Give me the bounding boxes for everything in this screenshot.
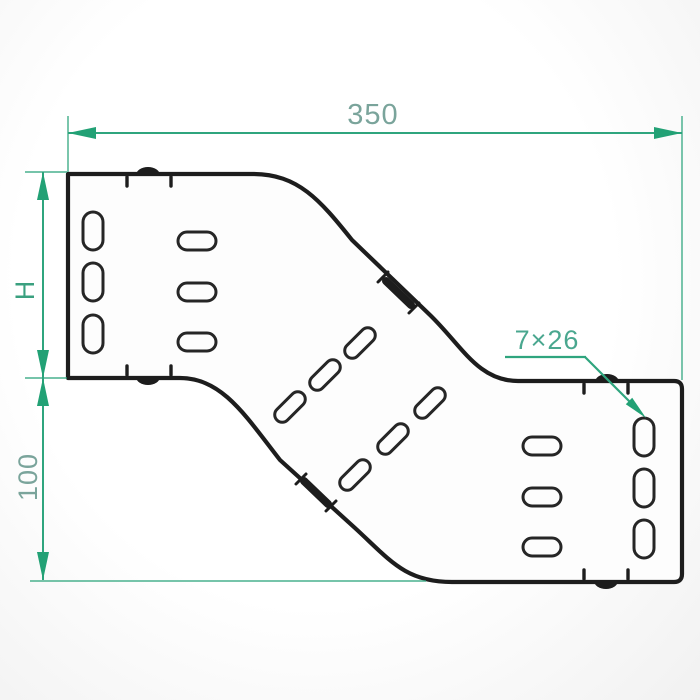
dim-overall-length: 350 — [68, 99, 682, 139]
dim-label-h: H — [10, 280, 40, 301]
arrowhead-down — [37, 350, 49, 378]
dim-label-350: 350 — [347, 99, 398, 131]
weld-tab — [594, 581, 618, 589]
slot-size-label: 7×26 — [515, 325, 580, 355]
arrowhead-left — [68, 127, 96, 139]
drawing-canvas: 350 H 100 7×26 — [0, 0, 700, 700]
part-body — [68, 167, 682, 589]
reducer-plate-drawing: 350 H 100 7×26 — [0, 0, 700, 700]
arrowhead-up — [37, 378, 49, 406]
arrowhead-up — [37, 172, 49, 200]
arrowhead-down — [37, 552, 49, 580]
arrowhead-right — [654, 127, 682, 139]
dim-label-100: 100 — [13, 453, 43, 501]
weld-tab — [136, 167, 160, 175]
part-outline — [68, 174, 682, 582]
weld-tab — [136, 377, 160, 385]
